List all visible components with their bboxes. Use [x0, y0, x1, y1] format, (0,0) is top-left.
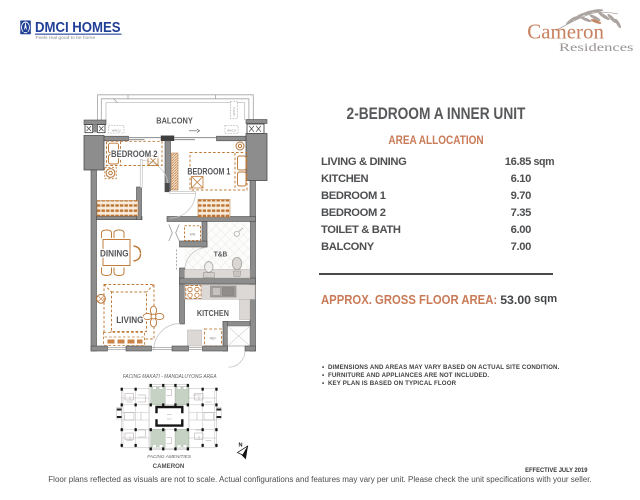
svg-text:N: N [239, 442, 243, 448]
svg-text:WM: WM [190, 232, 196, 236]
svg-text:REF: REF [210, 337, 217, 341]
svg-text:ACCU: ACCU [232, 107, 236, 116]
svg-text:BEDROOM 1: BEDROOM 1 [187, 166, 230, 176]
svg-text:BALCONY: BALCONY [156, 117, 193, 126]
svg-text:T&B: T&B [214, 250, 228, 259]
svg-text:KITCHEN: KITCHEN [197, 309, 229, 318]
svg-text:DINING: DINING [100, 249, 129, 259]
svg-text:FACING MAKATI - MANDALUYONG AR: FACING MAKATI - MANDALUYONG AREA [123, 374, 217, 380]
svg-text:CAMERON: CAMERON [153, 463, 185, 470]
svg-text:WACU: WACU [112, 128, 121, 132]
svg-text:LIVING: LIVING [116, 315, 143, 325]
svg-text:FACING AMENITIES: FACING AMENITIES [147, 454, 192, 459]
svg-text:WACU: WACU [227, 129, 236, 133]
svg-text:BEDROOM 2: BEDROOM 2 [111, 149, 158, 159]
